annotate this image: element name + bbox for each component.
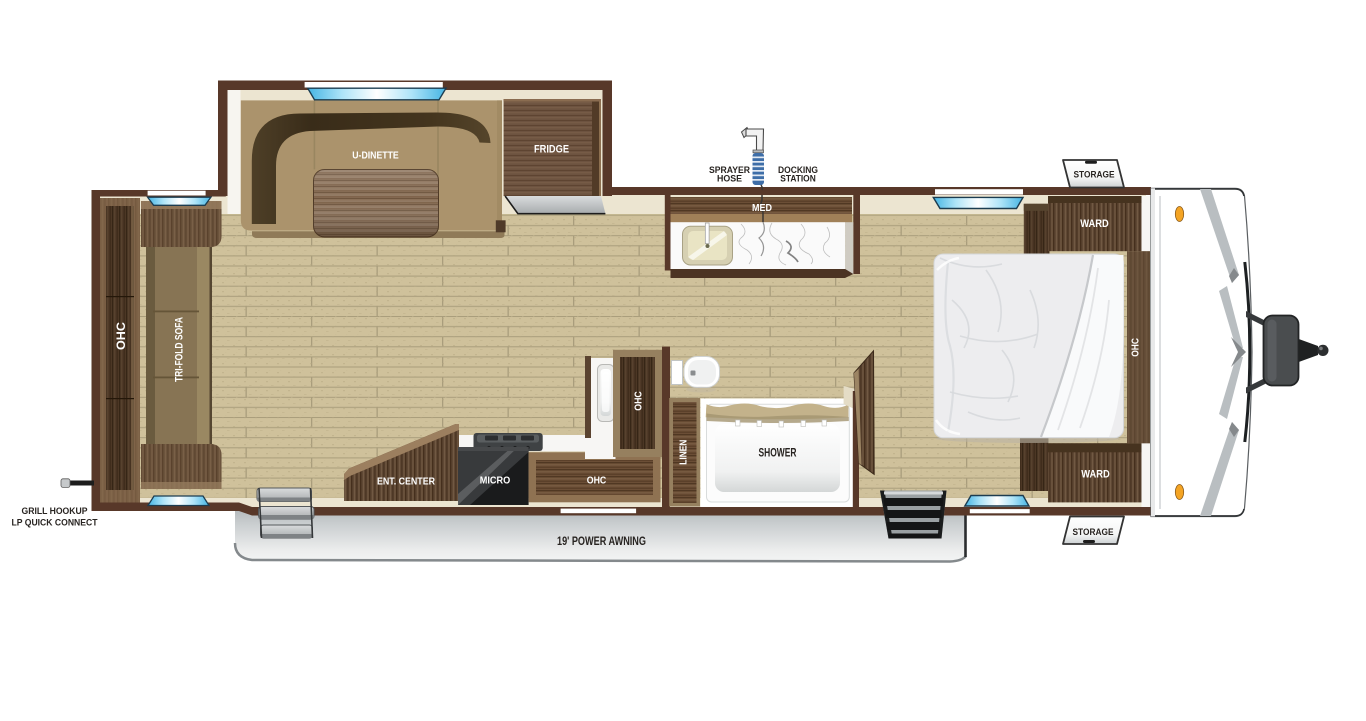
svg-text:MED: MED: [752, 203, 772, 214]
svg-text:OHC: OHC: [587, 475, 607, 487]
svg-text:ENT. CENTER: ENT. CENTER: [377, 477, 436, 488]
svg-text:LINEN: LINEN: [679, 440, 690, 465]
svg-text:GRILL HOOKUP: GRILL HOOKUP: [22, 506, 88, 516]
svg-text:TRI-FOLD SOFA: TRI-FOLD SOFA: [174, 317, 186, 382]
svg-text:U-DINETTE: U-DINETTE: [352, 150, 399, 162]
svg-text:SHOWER: SHOWER: [759, 448, 798, 460]
svg-text:FRIDGE: FRIDGE: [534, 144, 569, 156]
svg-text:WARD: WARD: [1081, 469, 1110, 481]
svg-text:HOSE: HOSE: [717, 174, 742, 184]
svg-text:OHC: OHC: [1130, 338, 1141, 357]
svg-text:STATION: STATION: [780, 174, 816, 184]
svg-text:STORAGE: STORAGE: [1073, 527, 1114, 537]
svg-text:19' POWER AWNING: 19' POWER AWNING: [557, 536, 646, 548]
svg-text:MICRO: MICRO: [480, 475, 511, 487]
svg-text:OHC: OHC: [116, 322, 128, 350]
svg-text:STORAGE: STORAGE: [1074, 170, 1115, 180]
svg-text:WARD: WARD: [1080, 218, 1109, 230]
svg-text:LP QUICK CONNECT: LP QUICK CONNECT: [12, 518, 98, 528]
svg-text:OHC: OHC: [634, 391, 645, 411]
